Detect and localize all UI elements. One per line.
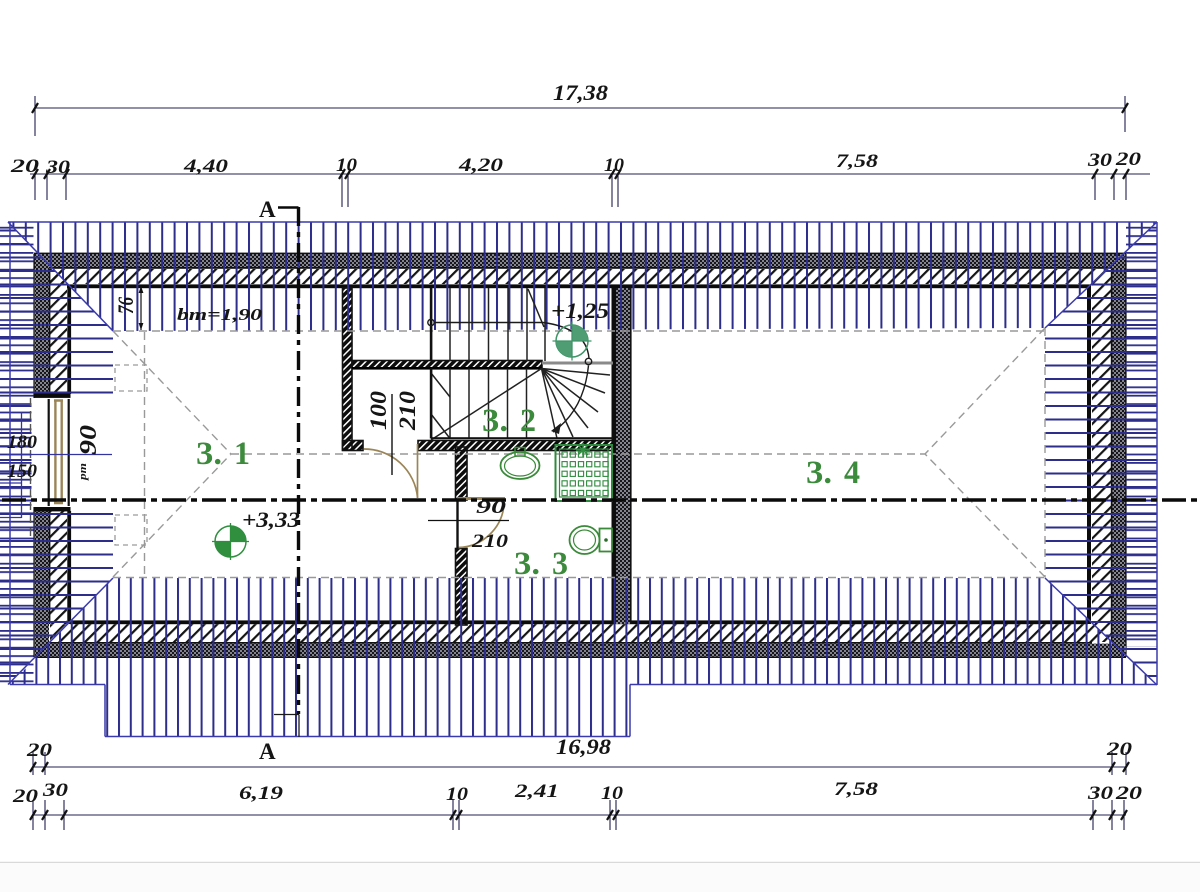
svg-text:16,98: 16,98 <box>556 734 611 759</box>
svg-text:20: 20 <box>10 156 40 177</box>
svg-text:10: 10 <box>336 155 358 176</box>
svg-text:90: 90 <box>476 497 507 518</box>
svg-text:1: 1 <box>234 436 250 472</box>
svg-text:17,38: 17,38 <box>553 80 608 105</box>
svg-text:90: 90 <box>76 425 102 455</box>
svg-text:30: 30 <box>45 157 71 178</box>
svg-text:4: 4 <box>844 455 860 491</box>
svg-text:30: 30 <box>1087 783 1114 804</box>
svg-text:20: 20 <box>26 740 53 761</box>
svg-text:100: 100 <box>366 390 391 430</box>
svg-text:6,19: 6,19 <box>239 783 284 804</box>
svg-text:7,58: 7,58 <box>834 779 879 800</box>
svg-text:3.: 3. <box>806 455 832 491</box>
svg-text:20: 20 <box>1106 739 1133 760</box>
svg-text:3.: 3. <box>196 436 222 472</box>
svg-text:210: 210 <box>395 390 420 431</box>
svg-text:4,20: 4,20 <box>458 155 504 176</box>
svg-text:+1,25: +1,25 <box>551 298 609 323</box>
svg-text:4,40: 4,40 <box>183 156 229 177</box>
svg-text:150: 150 <box>7 461 38 482</box>
svg-text:76: 76 <box>113 297 138 314</box>
svg-text:10: 10 <box>604 155 625 176</box>
svg-text:30: 30 <box>42 780 69 801</box>
svg-text:210: 210 <box>471 531 509 552</box>
svg-text:+3,33: +3,33 <box>242 507 300 532</box>
svg-text:bm=1,90: bm=1,90 <box>177 305 262 324</box>
svg-text:A: A <box>259 197 276 222</box>
svg-text:180: 180 <box>7 432 38 453</box>
svg-text:10: 10 <box>446 784 469 805</box>
svg-text:2: 2 <box>520 403 536 439</box>
svg-text:20: 20 <box>1115 783 1143 804</box>
svg-text:3.: 3. <box>482 403 508 439</box>
svg-text:3: 3 <box>552 546 568 582</box>
svg-text:2,41: 2,41 <box>514 781 559 802</box>
svg-text:pm: pm <box>77 462 89 481</box>
svg-text:7,58: 7,58 <box>836 151 879 172</box>
svg-text:20: 20 <box>1115 149 1142 170</box>
svg-text:20: 20 <box>12 786 39 807</box>
svg-text:A: A <box>259 739 276 764</box>
svg-text:30: 30 <box>1087 150 1113 171</box>
svg-text:3.: 3. <box>514 546 540 582</box>
svg-text:10: 10 <box>601 783 624 804</box>
